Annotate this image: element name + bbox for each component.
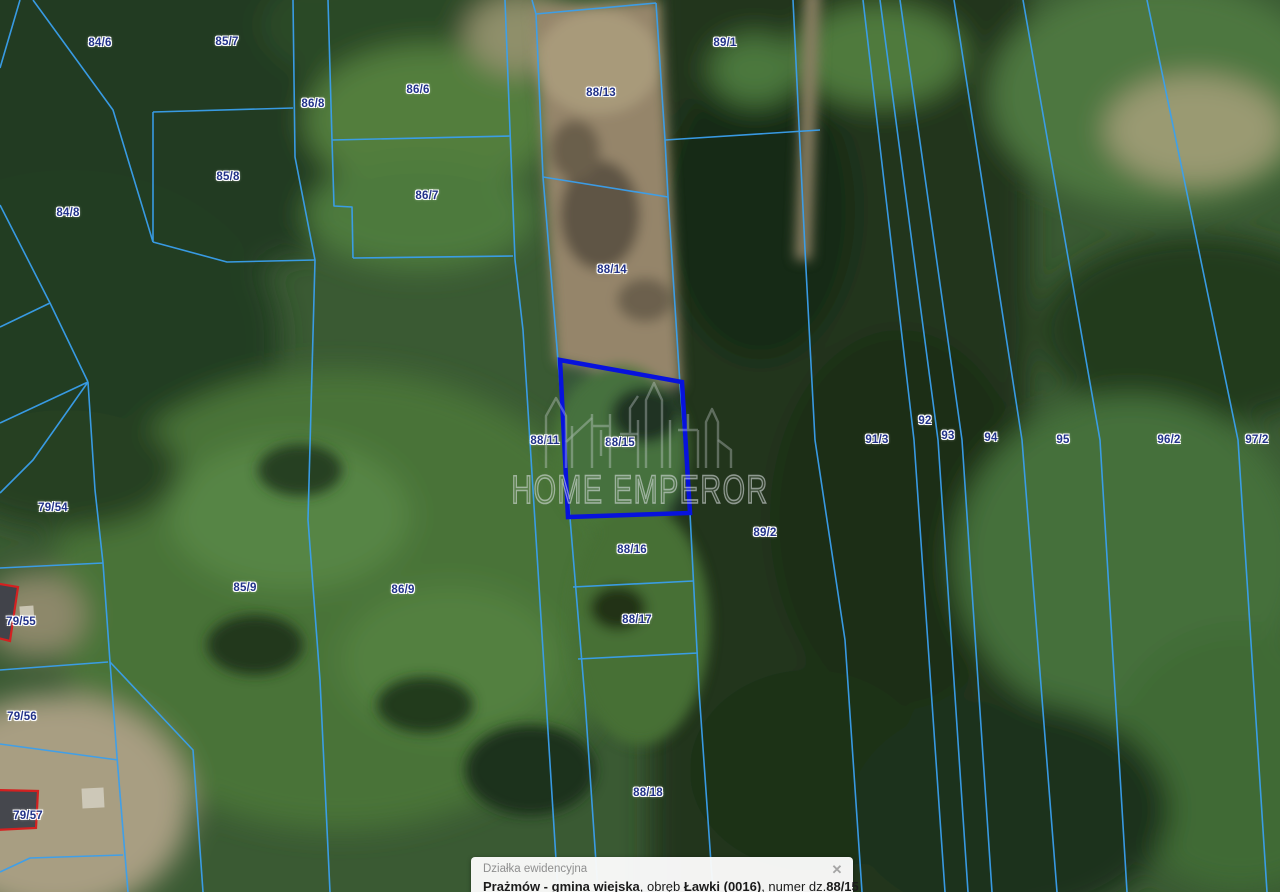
parcel-info-details: Prażmów - gmina wiejska, obręb Ławki (00…	[483, 879, 841, 892]
parcel-info-segment: Prażmów - gmina wiejska	[483, 879, 640, 892]
parcel-info-segment: Ławki (0016)	[684, 879, 761, 892]
aerial-map-layer	[0, 0, 1280, 892]
popup-close-button[interactable]: ✕	[830, 863, 844, 877]
parcel-info-segment: 88/15	[826, 879, 859, 892]
highlighted-parcel-outline	[560, 360, 690, 517]
parcel-info-segment: , numer dz.	[761, 879, 826, 892]
map-canvas[interactable]: 84/685/786/688/1389/186/885/886/784/888/…	[0, 0, 1280, 892]
parcel-info-segment: , obręb	[640, 879, 684, 892]
parcel-info-popup: Działka ewidencyjna Prażmów - gmina wiej…	[471, 857, 853, 892]
popup-title: Działka ewidencyjna	[483, 863, 841, 876]
building-79-57	[0, 790, 38, 830]
